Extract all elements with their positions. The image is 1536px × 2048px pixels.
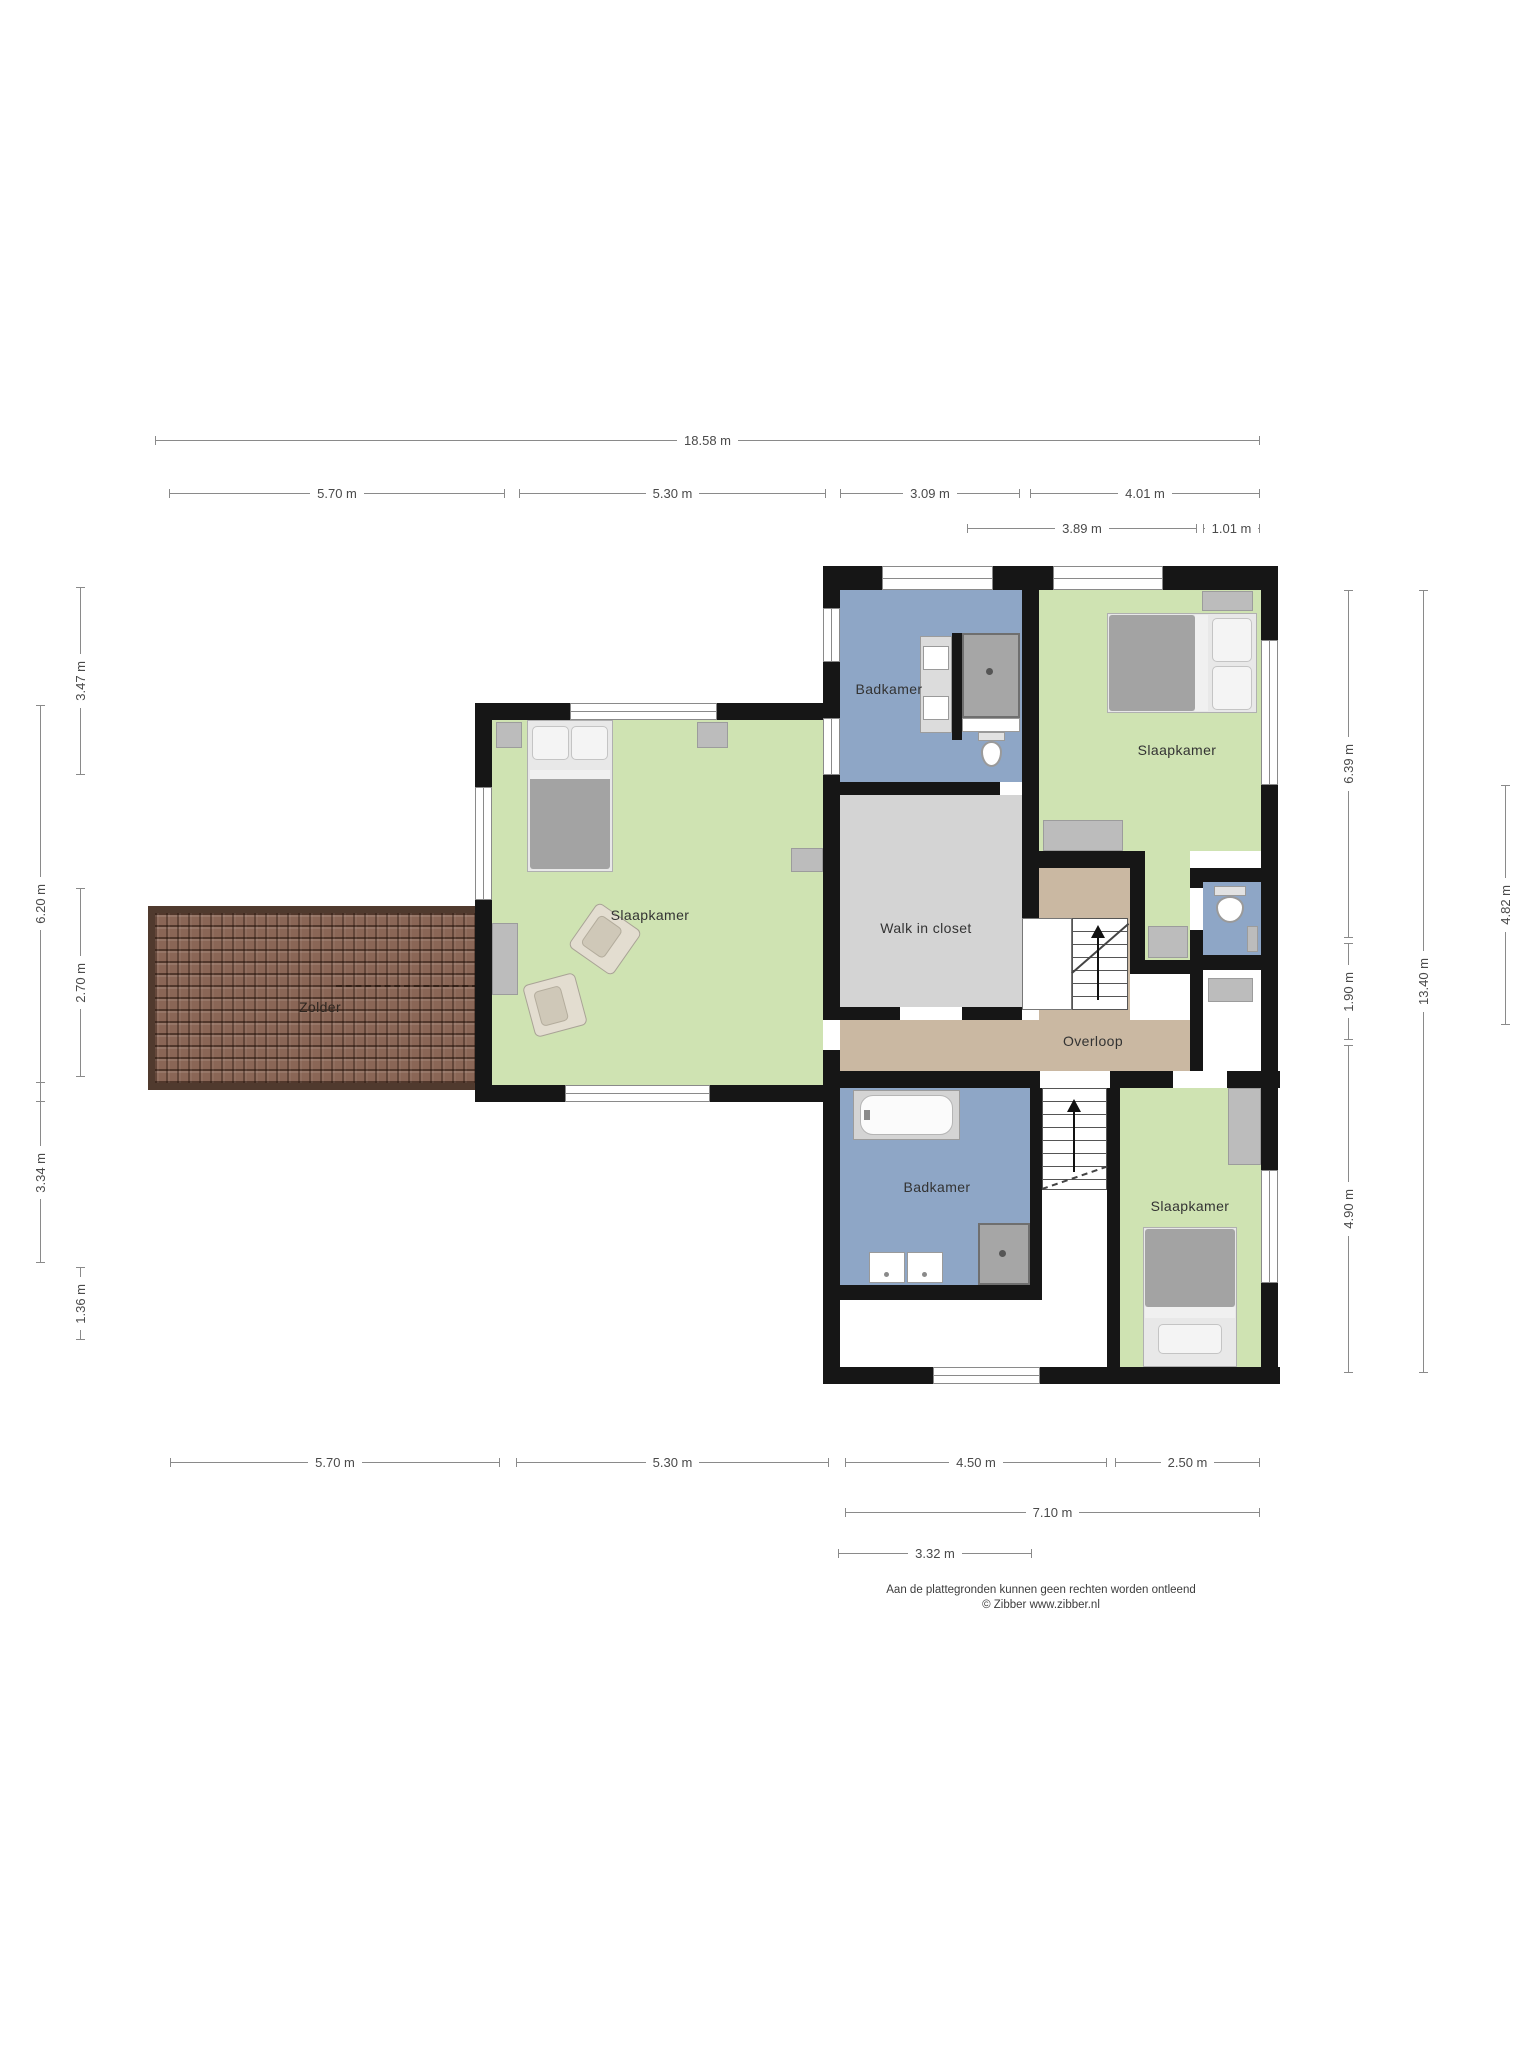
disclaimer-line2: © Zibber www.zibber.nl (886, 1598, 1195, 1613)
sink (923, 646, 949, 670)
sink (907, 1252, 943, 1283)
pillow (1212, 618, 1252, 662)
duvet (530, 770, 610, 869)
duvet-fold (530, 770, 610, 779)
wall (710, 1085, 840, 1102)
shelf (962, 718, 1020, 732)
chair-cushion (533, 985, 570, 1028)
window (565, 1085, 710, 1102)
wall (1261, 566, 1278, 640)
wall (1040, 1367, 1280, 1384)
pillow (532, 726, 569, 760)
dimension: 3.34 m (33, 1082, 47, 1263)
wall (823, 1050, 840, 1384)
wall (717, 703, 840, 720)
dimension: 2.70 m (73, 888, 87, 1077)
wall (840, 782, 1000, 795)
room-label-left-bedroom: Slaapkamer (611, 907, 690, 923)
dimension: 3.47 m (73, 587, 87, 775)
zolder-roof-area (148, 906, 490, 1090)
pillow (1158, 1324, 1222, 1354)
landing-floor-lower (840, 1020, 1190, 1071)
wall (1190, 930, 1203, 1071)
dimension: 4.90 m (1341, 1045, 1355, 1373)
dimension: 3.32 m (838, 1546, 1032, 1560)
window (1261, 1170, 1278, 1283)
window (823, 718, 840, 775)
wall (823, 1007, 900, 1020)
wall (475, 703, 492, 787)
room-label-overloop: Overloop (1063, 1033, 1123, 1049)
dimension: 3.89 m (967, 521, 1197, 535)
duvet-fold (1195, 615, 1208, 711)
stairwell-void (1022, 918, 1072, 1010)
shower-drain (986, 668, 993, 675)
radiator (791, 848, 823, 872)
disclaimer: Aan de plattegronden kunnen geen rechten… (886, 1583, 1195, 1613)
wall (1130, 851, 1145, 962)
floorplan-canvas: Zolder Slaapkamer Badkamer Slaapkamer Wa… (0, 0, 1536, 2048)
wall (823, 1367, 933, 1384)
dimension: 4.01 m (1030, 486, 1260, 500)
dimension: 7.10 m (845, 1505, 1260, 1519)
faucet-dot (922, 1272, 927, 1277)
room-label-zolder: Zolder (299, 999, 341, 1015)
wardrobe (1228, 1088, 1261, 1165)
sink (869, 1252, 905, 1283)
shower (962, 633, 1020, 718)
dimension: 5.70 m (169, 486, 505, 500)
dimension: 6.20 m (33, 705, 47, 1102)
window (823, 608, 840, 662)
window (933, 1367, 1040, 1384)
dimension: 5.70 m (170, 1455, 500, 1469)
wall (840, 1285, 1042, 1300)
dresser (1043, 820, 1123, 851)
dimension: 5.30 m (519, 486, 826, 500)
dimension: 4.82 m (1498, 785, 1512, 1025)
desk (492, 923, 518, 995)
wall (1107, 1088, 1120, 1373)
dimension: 1.36 m (73, 1267, 87, 1340)
wall (1227, 1071, 1280, 1088)
toilet-tank (1214, 886, 1246, 896)
nightstand (1202, 591, 1253, 611)
wall (1110, 1071, 1173, 1088)
sink (923, 696, 949, 720)
room-label-lower-bathroom: Badkamer (903, 1179, 970, 1195)
room-label-walk-in-closet: Walk in closet (880, 920, 971, 936)
wall (1030, 1088, 1042, 1285)
duvet-fold (1145, 1307, 1235, 1318)
room-label-upper-bathroom: Badkamer (855, 681, 922, 697)
duvet (1145, 1229, 1235, 1307)
wall (475, 900, 492, 1102)
radiator (1247, 926, 1258, 952)
wall (962, 1007, 1022, 1020)
walk-in-closet-floor (840, 795, 1022, 1007)
window (475, 787, 492, 900)
dimension: 4.50 m (845, 1455, 1107, 1469)
dimension: 1.90 m (1341, 943, 1355, 1040)
nightstand (697, 722, 728, 748)
radiator (1148, 926, 1188, 958)
pillow (571, 726, 608, 760)
disclaimer-line1: Aan de plattegronden kunnen geen rechten… (886, 1583, 1195, 1598)
duvet (1109, 615, 1195, 711)
stair-arrow-head (1091, 925, 1105, 938)
partition-wall (952, 633, 962, 740)
stair-direction-arrow (1073, 1112, 1075, 1172)
wall (475, 1085, 565, 1102)
wardrobe (496, 722, 522, 748)
wall (1261, 785, 1278, 1170)
toilet-tank (978, 732, 1005, 741)
dimension: 2.50 m (1115, 1455, 1260, 1469)
bathtub-inner (860, 1095, 953, 1135)
shower-drain (999, 1250, 1006, 1257)
stair-arrow-head (1067, 1099, 1081, 1112)
stair-direction-arrow (1097, 938, 1099, 1000)
wall (823, 566, 840, 608)
room-label-bottom-right-bedroom: Slaapkamer (1151, 1198, 1230, 1214)
dimension: 6.39 m (1341, 590, 1355, 938)
wall (1190, 955, 1261, 970)
wall (823, 775, 840, 795)
window (1053, 566, 1163, 590)
dimension: 3.09 m (840, 486, 1020, 500)
window (570, 703, 717, 720)
faucet-dot (884, 1272, 889, 1277)
window (882, 566, 993, 590)
pillow (1212, 666, 1252, 710)
wall (1130, 960, 1190, 974)
dimension-total-height: 13.40 m (1416, 590, 1430, 1373)
radiator (1208, 978, 1253, 1002)
wall (823, 1071, 1040, 1088)
dimension-total-width: 18.58 m (155, 433, 1260, 447)
dimension: 5.30 m (516, 1455, 829, 1469)
wall (993, 566, 1053, 590)
room-label-top-right-bedroom: Slaapkamer (1138, 742, 1217, 758)
dimension: 1.01 m (1203, 521, 1260, 535)
wall (823, 795, 840, 1010)
bathtub-faucet (864, 1110, 870, 1120)
wall (1022, 590, 1039, 920)
roof-ridge-line (336, 985, 478, 987)
wall (1190, 868, 1261, 882)
wall (1022, 851, 1140, 868)
window (1261, 640, 1278, 785)
